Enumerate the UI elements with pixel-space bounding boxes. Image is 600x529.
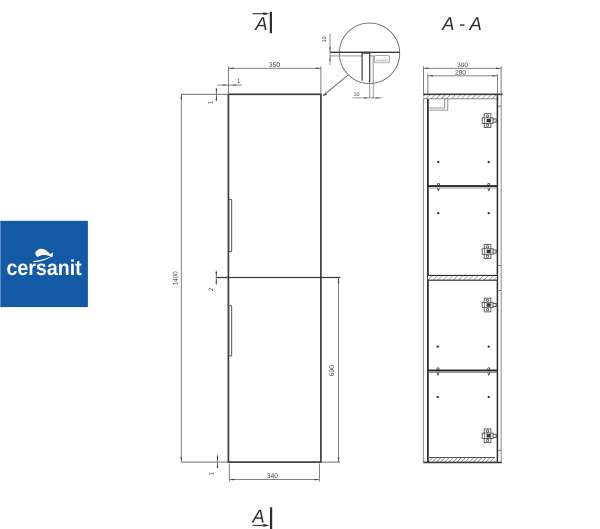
svg-text:350: 350 — [269, 62, 281, 69]
svg-text:1: 1 — [237, 78, 241, 85]
svg-text:340: 340 — [267, 473, 279, 480]
svg-text:280: 280 — [455, 69, 466, 76]
svg-text:300: 300 — [457, 62, 468, 69]
svg-text:A - A: A - A — [441, 13, 482, 34]
svg-text:A: A — [254, 13, 267, 34]
svg-text:2: 2 — [208, 287, 215, 291]
svg-text:1: 1 — [208, 471, 215, 475]
svg-text:10: 10 — [354, 92, 360, 98]
svg-text:A: A — [251, 506, 264, 527]
svg-text:1400: 1400 — [172, 271, 179, 286]
svg-text:10: 10 — [322, 36, 328, 42]
svg-text:cersanit: cersanit — [376, 58, 388, 62]
svg-text:690: 690 — [329, 365, 336, 377]
svg-text:1: 1 — [208, 100, 215, 104]
